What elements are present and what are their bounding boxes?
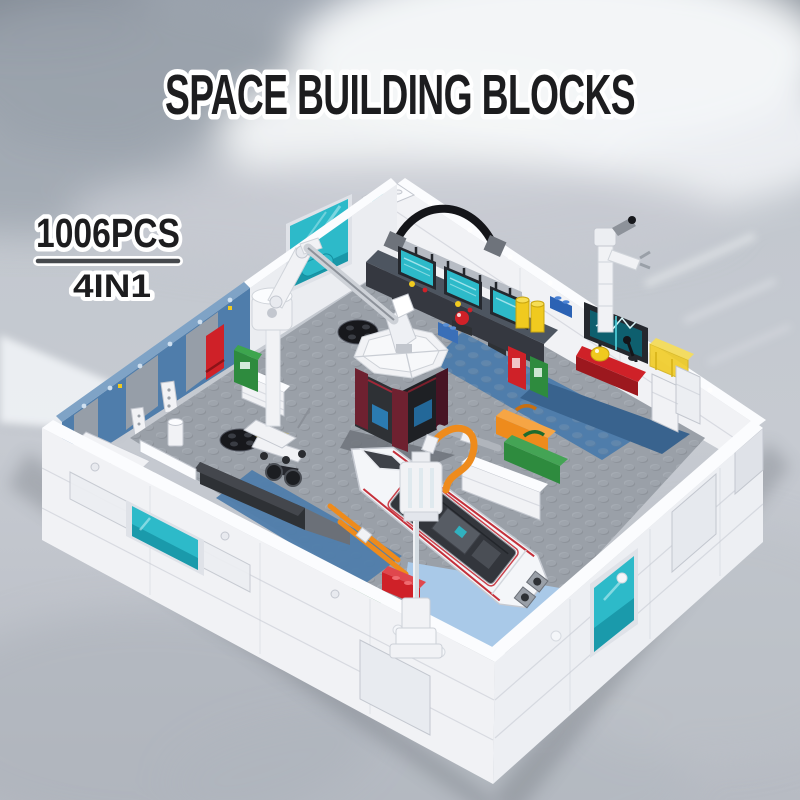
- console-button: [455, 301, 461, 307]
- tower-foot: [402, 598, 430, 632]
- console-button: [409, 281, 415, 287]
- warning-label: [228, 306, 232, 310]
- yellow-dome-button: [591, 347, 609, 361]
- pieces-count-badge: 1006PCS: [36, 210, 180, 256]
- warning-label: [118, 384, 122, 388]
- arm-post: [266, 330, 280, 426]
- maroon-pillar: [392, 388, 408, 452]
- pin-hole: [221, 532, 229, 540]
- poster-canvas: SPACE BUILDING BLOCKS 1006PCS 4IN1: [0, 0, 800, 800]
- arm-joint: [270, 296, 282, 308]
- pin-hole: [331, 590, 339, 598]
- maroon-pillar: [436, 368, 448, 430]
- red-dome-light: [455, 311, 469, 325]
- console-button: [468, 308, 473, 313]
- supply-canister: [168, 419, 183, 447]
- arm-camera-tip: [628, 216, 636, 224]
- pin-hole: [91, 463, 99, 471]
- console-button: [423, 288, 428, 293]
- maroon-pillar: [355, 368, 368, 430]
- product-poster: SPACE BUILDING BLOCKS 1006PCS 4IN1: [0, 0, 800, 800]
- variant-badge: 4IN1: [73, 268, 151, 304]
- poster-title: SPACE BUILDING BLOCKS: [165, 63, 635, 127]
